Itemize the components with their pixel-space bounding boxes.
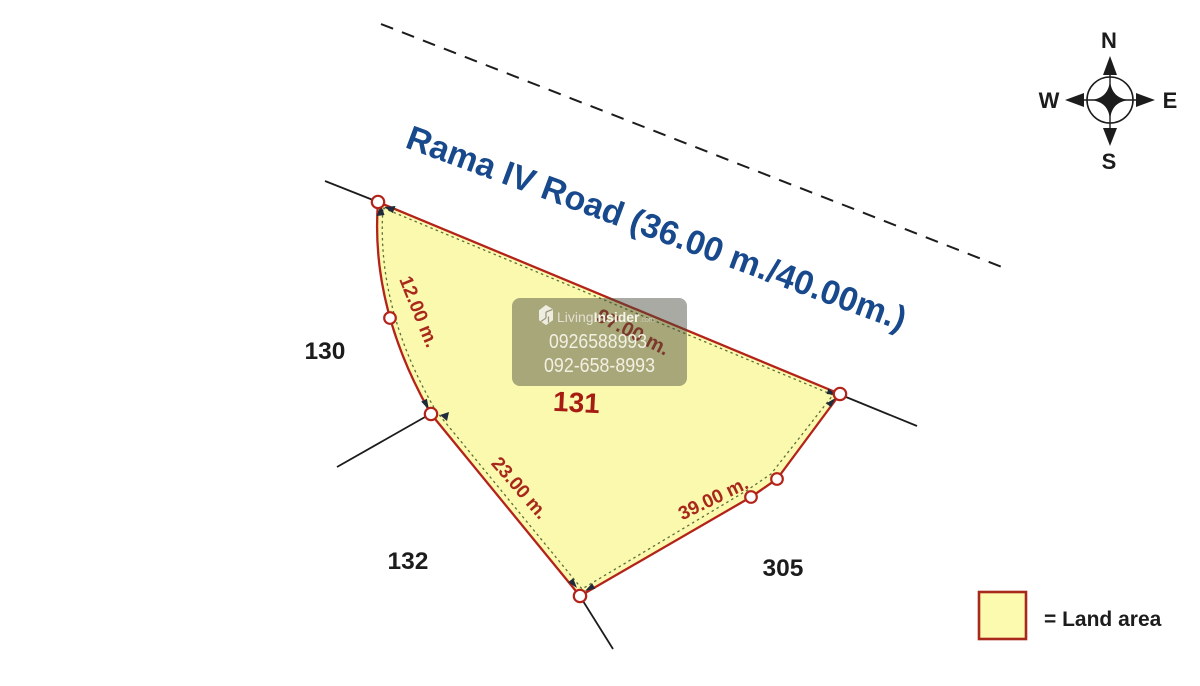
svg-text:132: 132 (388, 548, 429, 575)
svg-text:131: 131 (552, 386, 600, 419)
svg-text:130: 130 (305, 338, 346, 365)
svg-text:E: E (1163, 88, 1178, 113)
svg-text:N: N (1101, 28, 1117, 53)
svg-text:305: 305 (763, 555, 804, 582)
svg-text:W: W (1039, 88, 1060, 113)
svg-text:= Land area: = Land area (1044, 608, 1162, 631)
svg-text:S: S (1102, 149, 1117, 174)
svg-text:0926588993: 0926588993 (549, 331, 647, 353)
svg-text:092-658-8993: 092-658-8993 (544, 355, 655, 377)
